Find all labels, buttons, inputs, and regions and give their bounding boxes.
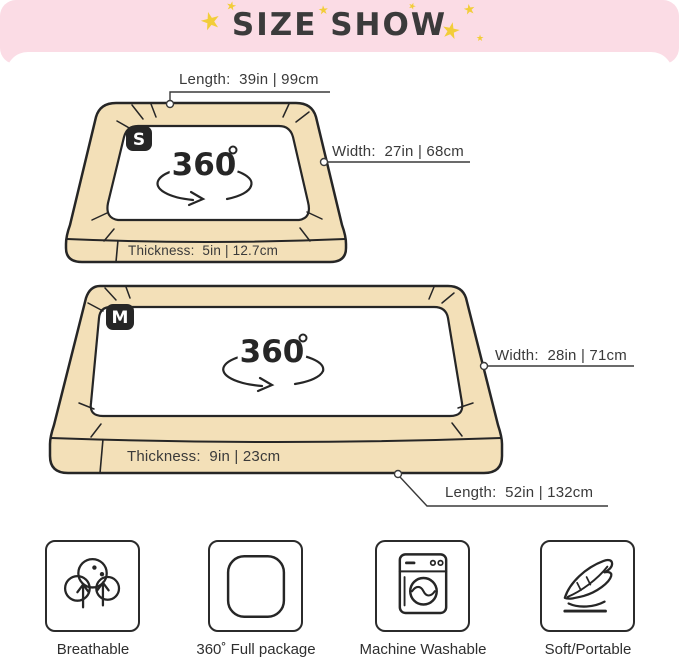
rotation-360-text: 360 xyxy=(240,334,305,370)
dimension-label-length-s: Length: 39in | 99cm xyxy=(179,72,319,89)
dimension-label-length-m: Length: 52in | 132cm xyxy=(445,485,593,502)
size-show-infographic: SIZE SHOW ★ ★ ★ ★ ★ ★ ★ 360 360 xyxy=(0,0,679,664)
feature-box-breathable xyxy=(45,540,140,632)
bed-s-illustration: 360 360 S xyxy=(66,92,470,262)
feature-box-soft-portable xyxy=(540,540,635,632)
feature-box-machine-washable xyxy=(375,540,470,632)
dimension-label-thickness-m: Thickness: 9in | 23cm xyxy=(127,449,280,466)
rotation-360-text: 360 xyxy=(172,147,237,183)
dimension-label-width-m: Width: 28in | 71cm xyxy=(495,348,627,365)
machine-washable-icon xyxy=(378,543,468,630)
feather-icon xyxy=(543,543,633,630)
feature-label-machine-washable: Machine Washable xyxy=(338,641,508,658)
feature-label-full-package: 360˚ Full package xyxy=(171,641,341,658)
size-badge-m-letter: M xyxy=(112,308,129,328)
feature-box-full-package xyxy=(208,540,303,632)
bed-m-illustration: 360 360 M xyxy=(50,286,634,506)
dimension-label-width-s: Width: 27in | 68cm xyxy=(332,144,464,161)
full-package-icon xyxy=(211,543,301,630)
size-badge-s-letter: S xyxy=(133,130,145,150)
feature-label-soft-portable: Soft/Portable xyxy=(503,641,673,658)
breathable-icon xyxy=(48,543,138,630)
dimension-label-thickness-s: Thickness: 5in | 12.7cm xyxy=(128,244,278,259)
feature-label-breathable: Breathable xyxy=(8,641,178,658)
